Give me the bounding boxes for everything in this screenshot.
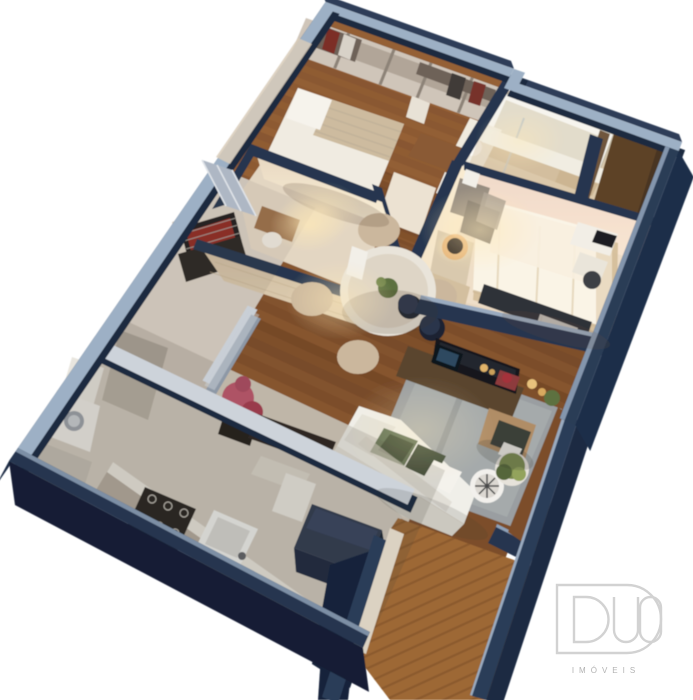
svg-text:IMÓVEIS: IMÓVEIS [572, 666, 640, 675]
